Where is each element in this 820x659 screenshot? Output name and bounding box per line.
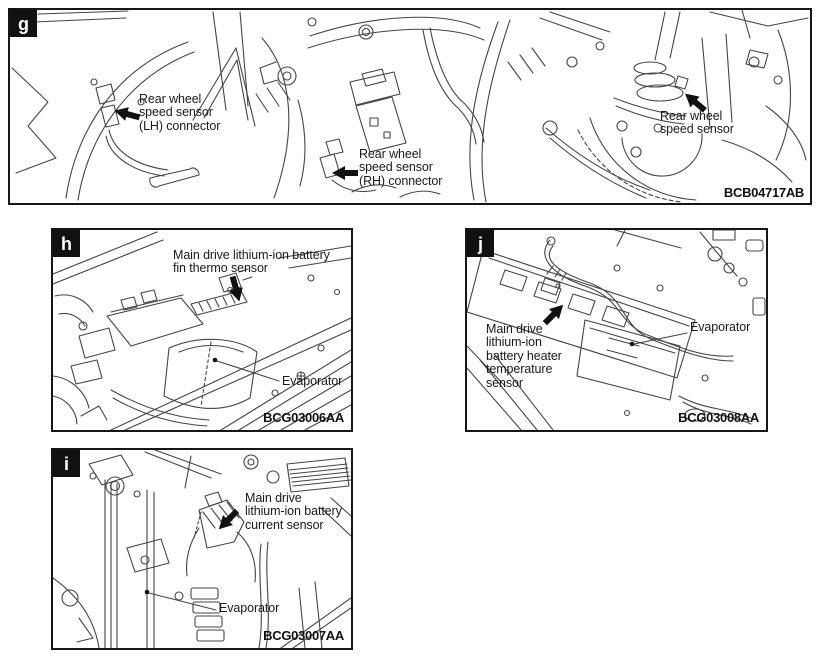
panel-i: i Main drive lithium-ion battery current… [51,448,353,650]
callout-rear-wheel-speed-sensor: Rear wheel speed sensor [660,110,734,137]
panel-j: j Main drive lithium-ion battery heater … [465,228,768,432]
panel-letter: j [478,235,483,253]
leader-line [217,361,279,381]
leader-dot [630,342,635,347]
panel-g: g Rear wheel speed sensor (LH) connector… [8,8,812,205]
panel-letter-badge: j [467,230,494,257]
manual-figure-page: g Rear wheel speed sensor (LH) connector… [0,0,820,659]
callout-evaporator: Evaporator [282,375,342,388]
panel-h: h Main drive lithium-ion battery fin the… [51,228,353,432]
figure-code: BCB04717AB [724,185,804,200]
callout-arrow-icon [332,166,358,180]
leader-dot [213,358,218,363]
callout-evaporator: Evaporator [690,321,750,334]
figure-code: BCG03008AA [678,410,759,425]
line-art-engine-bay-i [53,450,351,648]
panel-letter: g [18,15,29,33]
leader-dot [145,590,150,595]
panel-letter-badge: i [53,450,80,477]
callout-heater-temperature-sensor: Main drive lithium-ion battery heater te… [486,323,562,390]
figure-code: BCG03006AA [263,410,344,425]
panel-letter: i [64,455,69,473]
panel-letter: h [61,235,72,253]
callout-evaporator: Evaporator [219,602,279,615]
panel-letter-badge: h [53,230,80,257]
callout-rear-wheel-speed-sensor-rh: Rear wheel speed sensor (RH) connector [359,148,442,188]
figure-code: BCG03007AA [263,628,344,643]
callout-fin-thermo-sensor: Main drive lithium-ion battery fin therm… [173,249,330,276]
callout-current-sensor: Main drive lithium-ion battery current s… [245,492,342,532]
callout-rear-wheel-speed-sensor-lh: Rear wheel speed sensor (LH) connector [139,93,220,133]
panel-letter-badge: g [10,10,37,37]
